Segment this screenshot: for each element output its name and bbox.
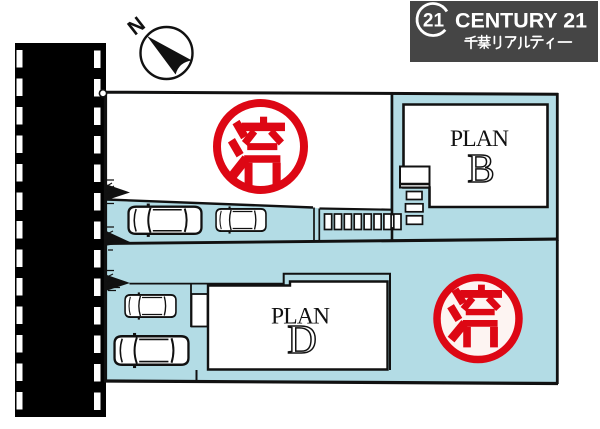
svg-text:D: D <box>287 316 317 362</box>
svg-text:CENTURY 21: CENTURY 21 <box>455 9 587 33</box>
svg-text:21: 21 <box>423 11 445 32</box>
svg-text:B: B <box>467 145 494 191</box>
